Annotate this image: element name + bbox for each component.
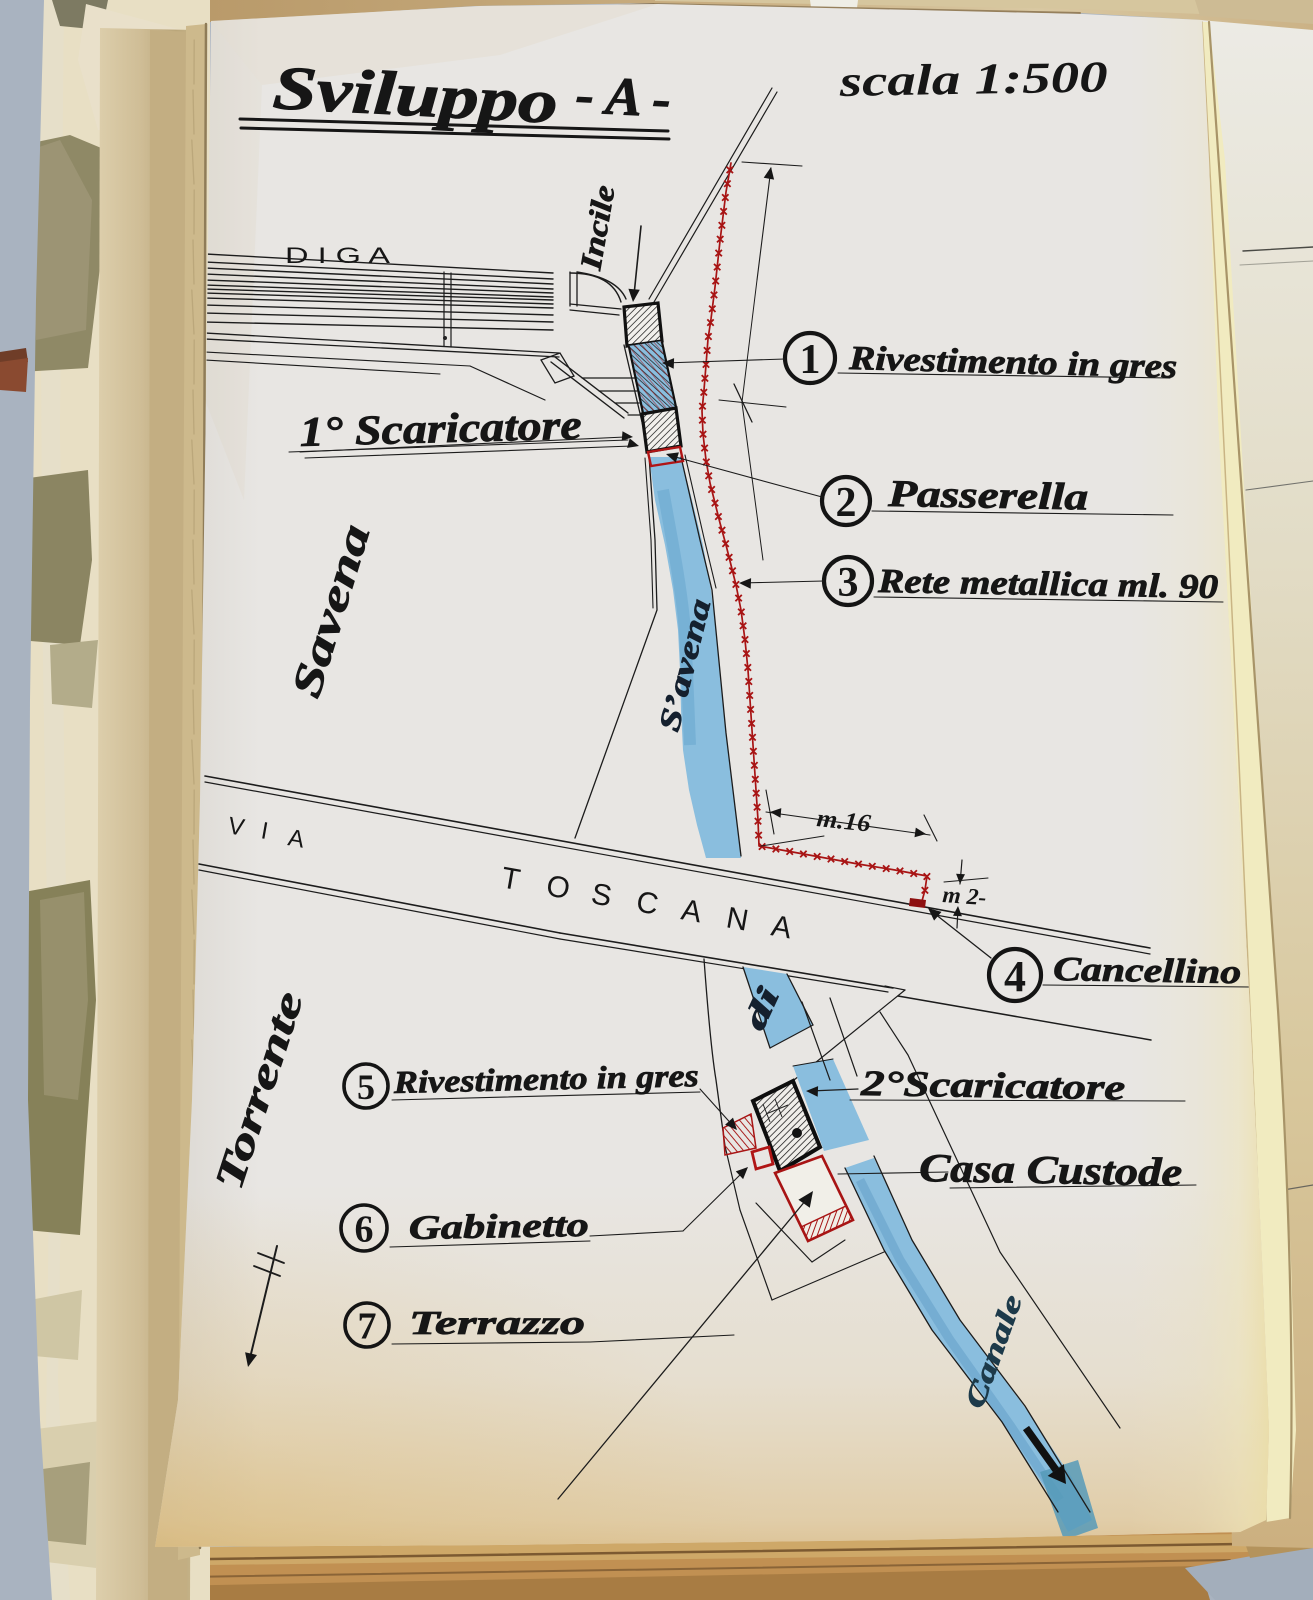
svg-text:2°Scaricatore: 2°Scaricatore bbox=[860, 1063, 1126, 1108]
svg-text:D I G A: D I G A bbox=[285, 243, 390, 268]
svg-text:6: 6 bbox=[355, 1209, 374, 1251]
svg-text:Gabinetto: Gabinetto bbox=[408, 1207, 589, 1247]
svg-text:1° Scaricatore: 1° Scaricatore bbox=[299, 403, 582, 456]
svg-text:3: 3 bbox=[838, 560, 859, 606]
svg-text:1: 1 bbox=[800, 337, 821, 383]
svg-text:scala 1:500: scala 1:500 bbox=[838, 52, 1108, 106]
svg-text:Terrazzo: Terrazzo bbox=[409, 1305, 585, 1342]
svg-text:Cancellino: Cancellino bbox=[1053, 951, 1242, 991]
svg-text:2: 2 bbox=[836, 480, 857, 526]
svg-text:- A -: - A - bbox=[574, 64, 672, 129]
svg-text:Passerella: Passerella bbox=[887, 473, 1089, 519]
svg-text:Casa Custode: Casa Custode bbox=[919, 1145, 1183, 1195]
svg-text:5: 5 bbox=[357, 1067, 375, 1107]
svg-text:7: 7 bbox=[358, 1306, 377, 1348]
svg-text:m.16: m.16 bbox=[815, 805, 872, 838]
svg-text:Rete metallica ml. 90: Rete metallica ml. 90 bbox=[877, 563, 1219, 606]
svg-text:Rivestimento in gres: Rivestimento in gres bbox=[392, 1057, 699, 1100]
svg-text:4: 4 bbox=[1004, 952, 1026, 1001]
svg-text:m 2-: m 2- bbox=[942, 882, 988, 910]
